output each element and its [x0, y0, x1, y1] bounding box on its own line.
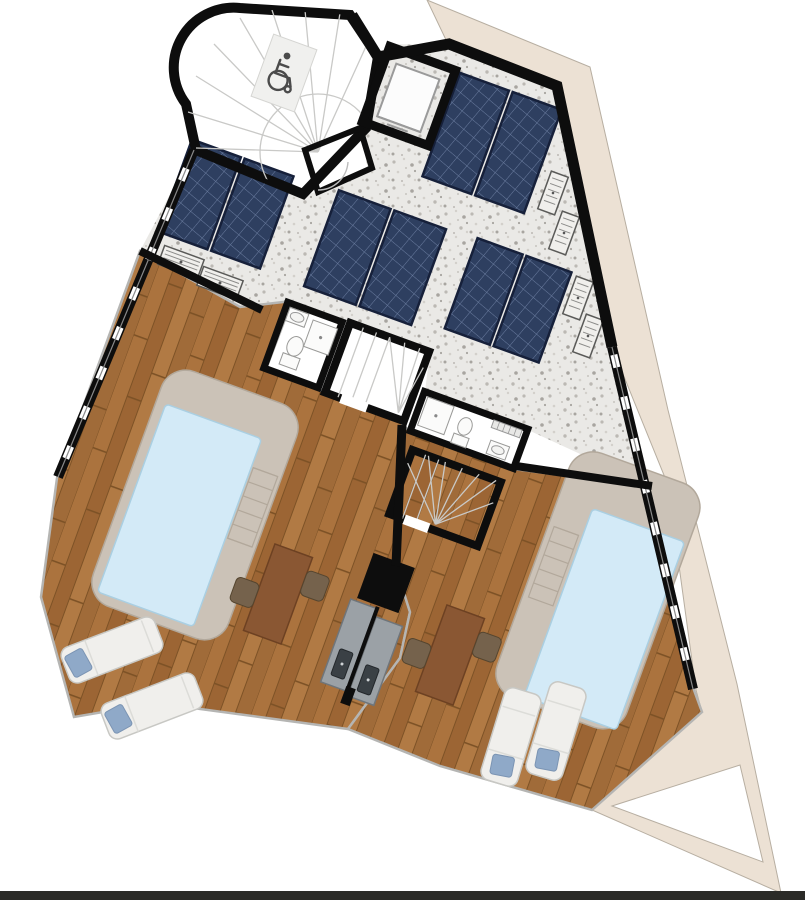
terrace-divider-wall-upper: [396, 425, 402, 566]
floor-plan-drawing: [0, 0, 805, 900]
pillow: [535, 748, 560, 772]
pillow: [490, 754, 515, 778]
bottom-border-bar: [0, 891, 805, 900]
floor-plan-page: [0, 0, 805, 900]
